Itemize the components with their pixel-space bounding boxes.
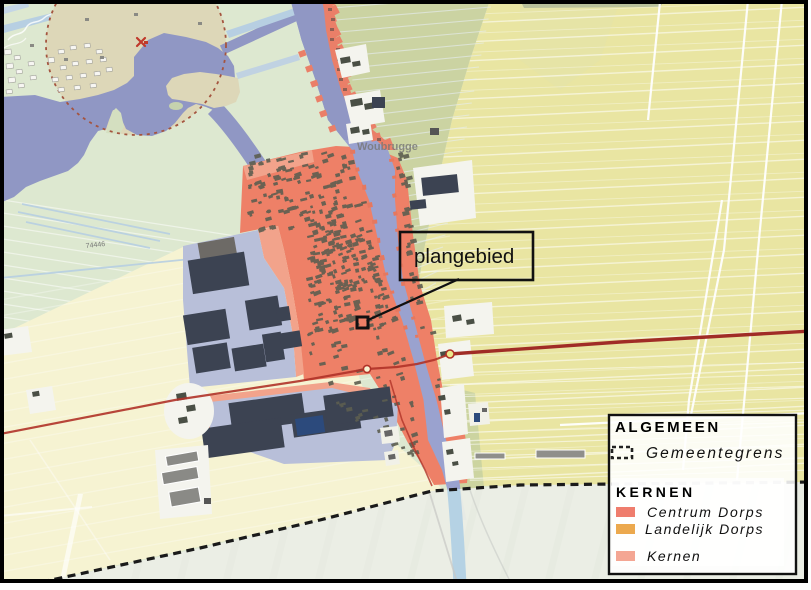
svg-text:plangebied: plangebied	[414, 245, 514, 268]
svg-text:KERNEN: KERNEN	[616, 484, 696, 500]
svg-text:Woubrugge: Woubrugge	[357, 141, 418, 153]
svg-text:Kernen: Kernen	[647, 548, 701, 564]
svg-text:Centrum Dorps: Centrum Dorps	[647, 504, 764, 520]
svg-text:ALGEMEEN: ALGEMEEN	[615, 419, 721, 436]
svg-text:Gemeentegrens: Gemeentegrens	[646, 445, 784, 462]
svg-text:Landelijk Dorps: Landelijk Dorps	[645, 521, 764, 537]
